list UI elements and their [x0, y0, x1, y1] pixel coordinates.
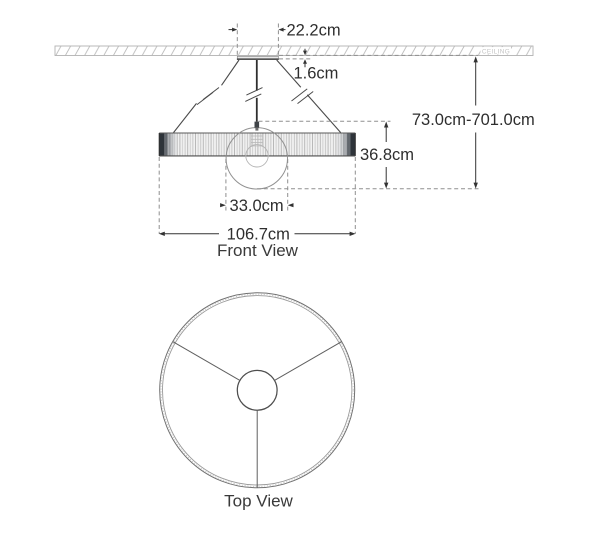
- svg-text:CEILING: CEILING: [482, 49, 510, 56]
- svg-text:36.8cm: 36.8cm: [360, 146, 414, 164]
- svg-text:1.6cm: 1.6cm: [294, 65, 339, 83]
- svg-text:33.0cm: 33.0cm: [230, 197, 284, 215]
- svg-text:22.2cm: 22.2cm: [287, 21, 341, 39]
- svg-text:Front View: Front View: [217, 241, 299, 260]
- svg-text:Top View: Top View: [224, 492, 293, 511]
- svg-text:73.0cm-701.0cm: 73.0cm-701.0cm: [412, 111, 535, 129]
